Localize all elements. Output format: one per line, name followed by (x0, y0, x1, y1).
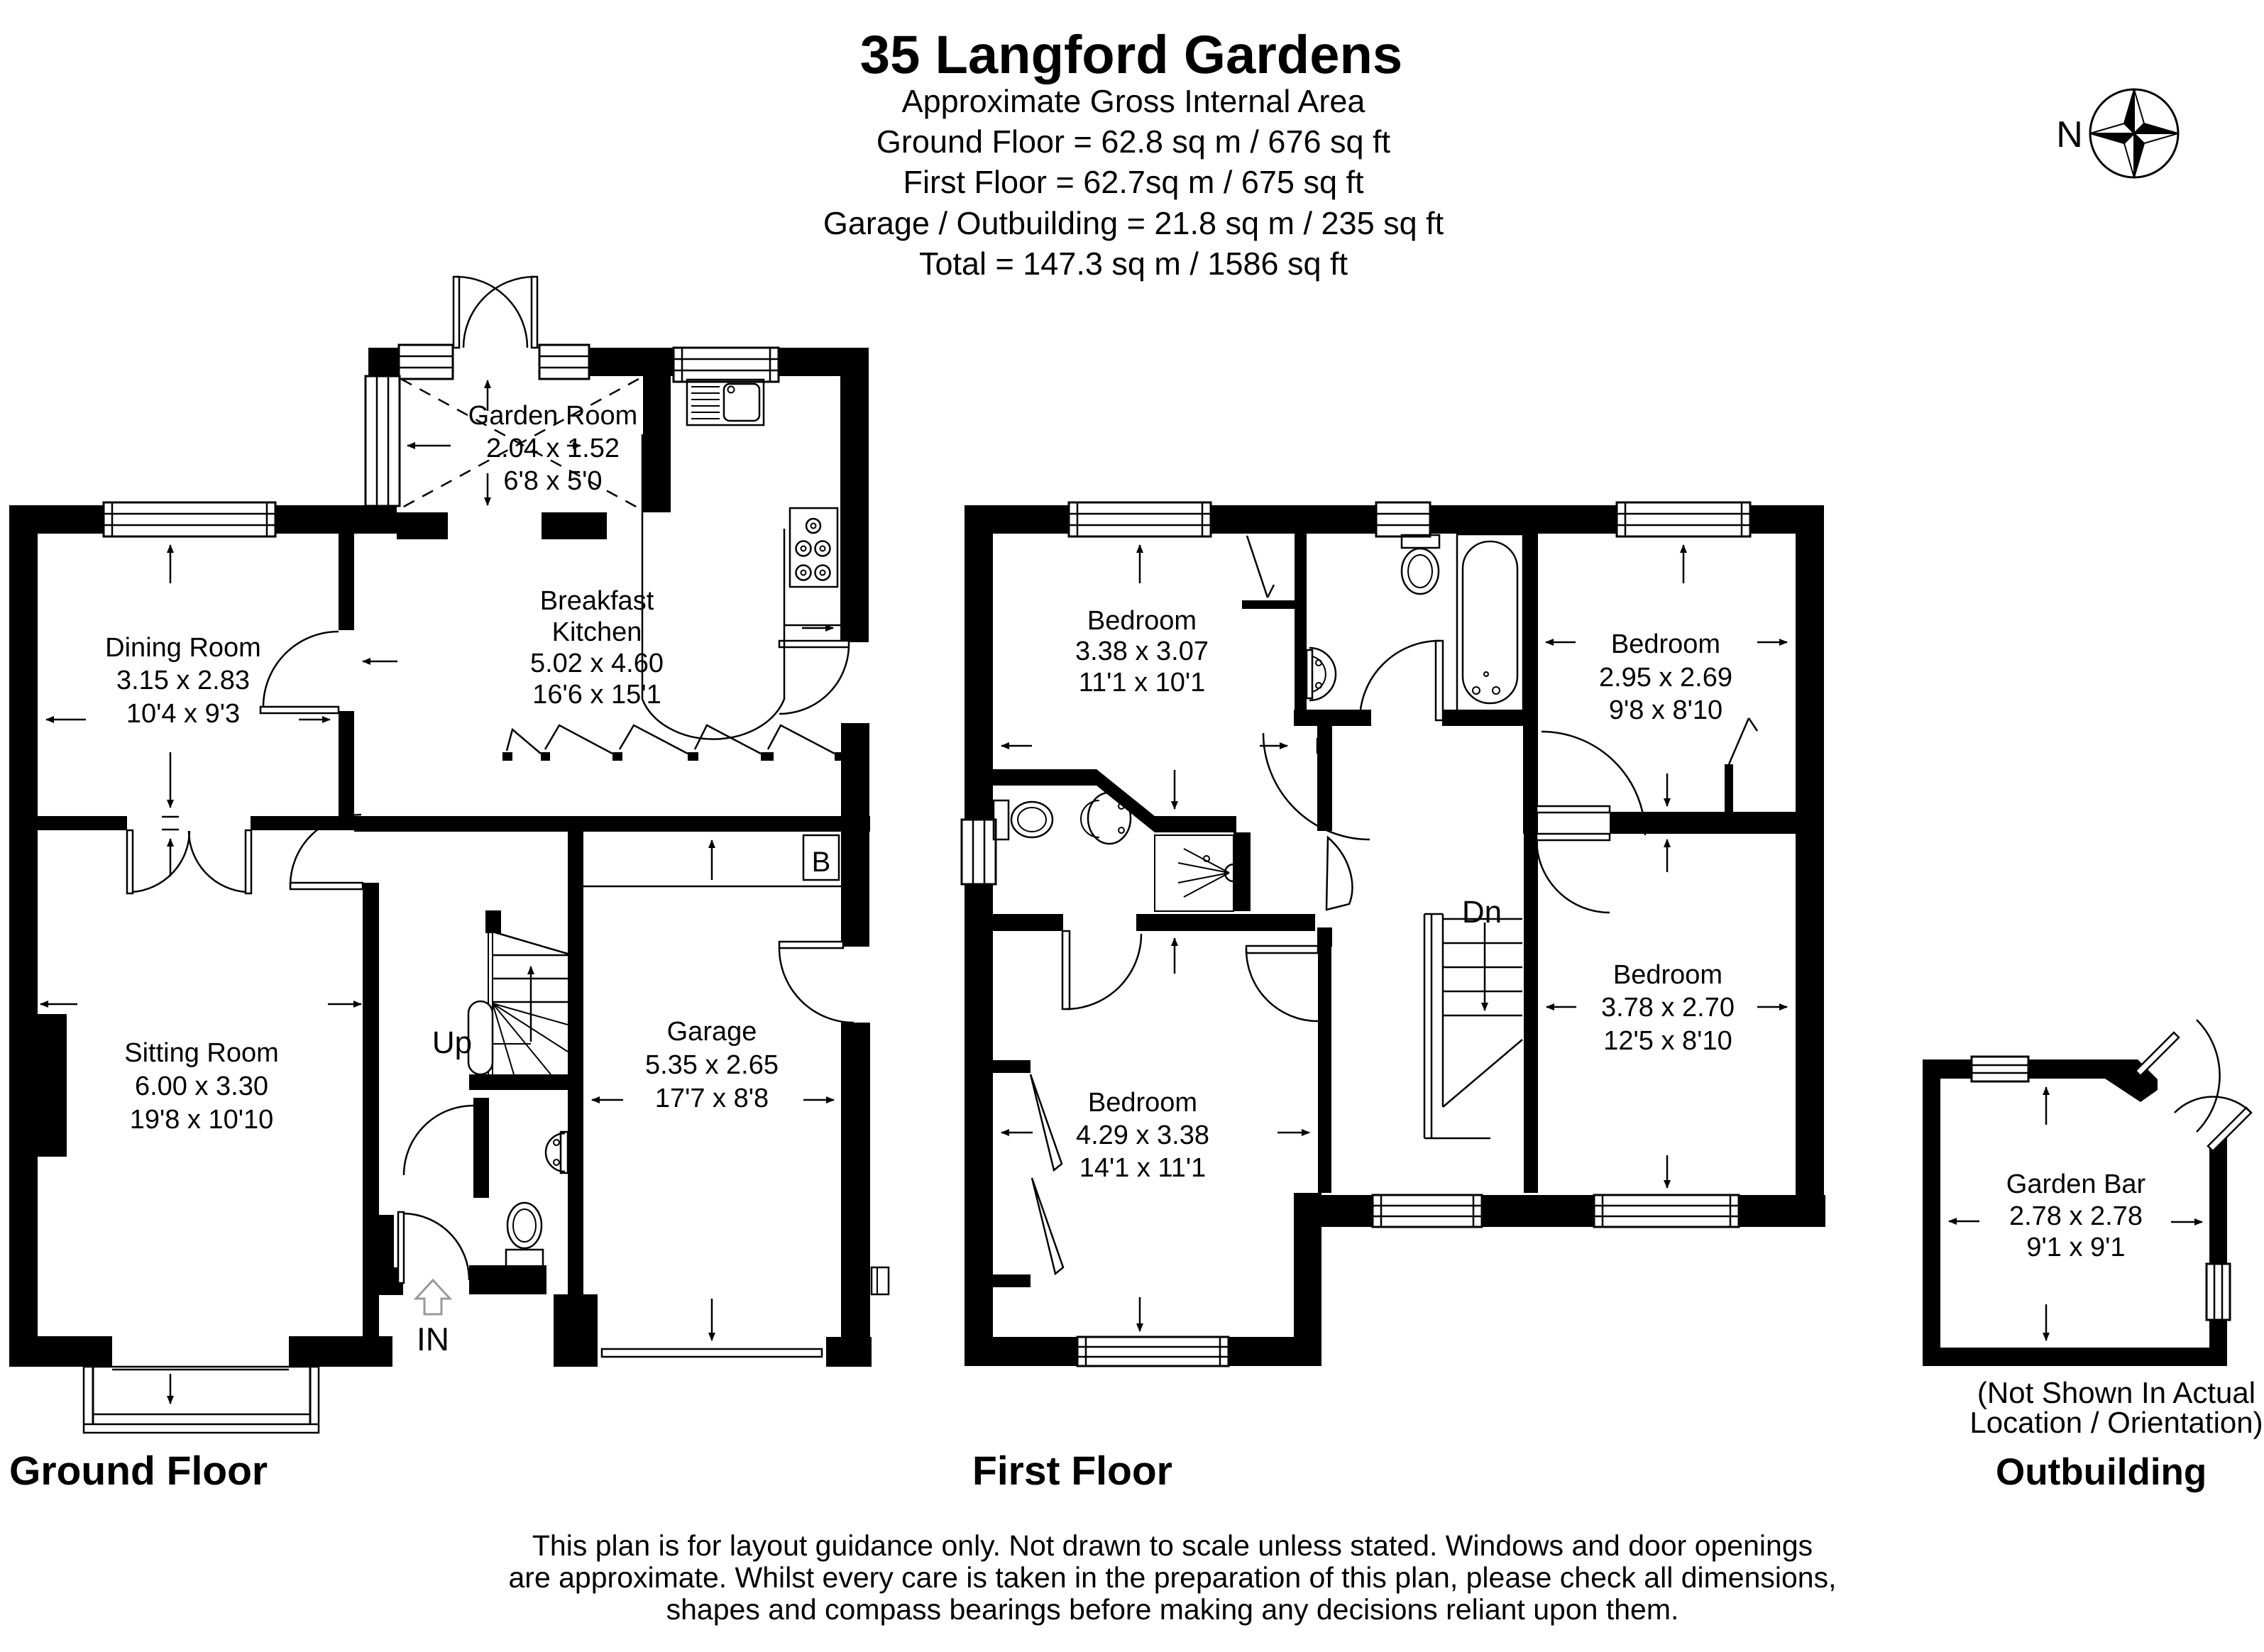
svg-text:First Floor = 62.7sq m / 675 s: First Floor = 62.7sq m / 675 sq ft (903, 164, 1364, 200)
svg-text:Garden Room: Garden Room (468, 401, 638, 431)
svg-text:14'1 x 11'1: 14'1 x 11'1 (1079, 1153, 1207, 1183)
svg-text:Dn: Dn (1462, 895, 1502, 930)
svg-text:Bedroom: Bedroom (1611, 629, 1720, 659)
svg-text:are approximate. Whilst every: are approximate. Whilst every care is ta… (508, 1561, 1836, 1594)
svg-text:Dining Room: Dining Room (105, 633, 261, 663)
svg-text:2.78 x 2.78: 2.78 x 2.78 (2009, 1201, 2143, 1231)
svg-text:Sitting Room: Sitting Room (124, 1038, 279, 1068)
svg-text:First Floor: First Floor (972, 1448, 1172, 1494)
svg-text:shapes and compass bearings be: shapes and compass bearings before makin… (666, 1593, 1679, 1626)
svg-text:6.00 x 3.30: 6.00 x 3.30 (135, 1072, 268, 1101)
svg-text:6'8 x 5'0: 6'8 x 5'0 (503, 466, 602, 496)
svg-text:16'6 x 15'1: 16'6 x 15'1 (532, 680, 661, 710)
svg-text:Garage: Garage (667, 1017, 757, 1047)
svg-text:IN: IN (417, 1321, 449, 1358)
svg-text:Bedroom: Bedroom (1088, 1088, 1197, 1118)
svg-text:5.35 x 2.65: 5.35 x 2.65 (645, 1050, 779, 1080)
svg-text:B: B (812, 847, 831, 878)
svg-text:Bedroom: Bedroom (1613, 960, 1722, 990)
svg-text:Location / Orientation): Location / Orientation) (1969, 1406, 2263, 1439)
svg-text:2.04 x 1.52: 2.04 x 1.52 (486, 434, 620, 463)
svg-text:This plan is for layout guidan: This plan is for layout guidance only. N… (532, 1529, 1813, 1562)
svg-text:Ground Floor: Ground Floor (9, 1448, 268, 1494)
svg-text:11'1 x 10'1: 11'1 x 10'1 (1079, 668, 1206, 698)
svg-text:12'5 x 8'10: 12'5 x 8'10 (1603, 1026, 1732, 1056)
svg-text:(Not Shown In Actual: (Not Shown In Actual (1977, 1376, 2255, 1409)
svg-text:4.29 x 3.38: 4.29 x 3.38 (1076, 1120, 1209, 1150)
svg-text:Approximate Gross Internal Are: Approximate Gross Internal Area (902, 83, 1366, 119)
svg-text:9'8 x 8'10: 9'8 x 8'10 (1609, 695, 1722, 725)
svg-text:19'8 x 10'10: 19'8 x 10'10 (130, 1105, 274, 1135)
svg-text:10'4 x 9'3: 10'4 x 9'3 (126, 699, 240, 729)
svg-text:17'7 x 8'8: 17'7 x 8'8 (655, 1084, 769, 1113)
svg-text:Outbuilding: Outbuilding (1996, 1451, 2207, 1493)
svg-text:9'1 x 9'1: 9'1 x 9'1 (2026, 1233, 2125, 1262)
svg-text:35 Langford Gardens: 35 Langford Gardens (860, 25, 1402, 85)
svg-text:3.38 x 3.07: 3.38 x 3.07 (1075, 637, 1209, 666)
svg-text:Breakfast: Breakfast (540, 586, 654, 616)
svg-text:3.15 x 2.83: 3.15 x 2.83 (116, 666, 250, 695)
svg-text:Total = 147.3 sq m / 1586 sq f: Total = 147.3 sq m / 1586 sq ft (919, 246, 1348, 282)
svg-text:Ground Floor = 62.8 sq m / 676: Ground Floor = 62.8 sq m / 676 sq ft (877, 123, 1391, 160)
svg-text:Garage / Outbuilding = 21.8 sq: Garage / Outbuilding = 21.8 sq m / 235 s… (823, 205, 1444, 241)
svg-text:3.78 x 2.70: 3.78 x 2.70 (1601, 993, 1735, 1023)
svg-text:2.95 x 2.69: 2.95 x 2.69 (1599, 663, 1732, 693)
svg-text:5.02 x 4.60: 5.02 x 4.60 (530, 649, 664, 678)
svg-text:Up: Up (432, 1025, 472, 1060)
svg-text:Garden Bar: Garden Bar (2006, 1169, 2146, 1199)
svg-text:Bedroom: Bedroom (1087, 606, 1197, 636)
svg-text:N: N (2056, 114, 2083, 155)
svg-text:Kitchen: Kitchen (552, 617, 642, 647)
